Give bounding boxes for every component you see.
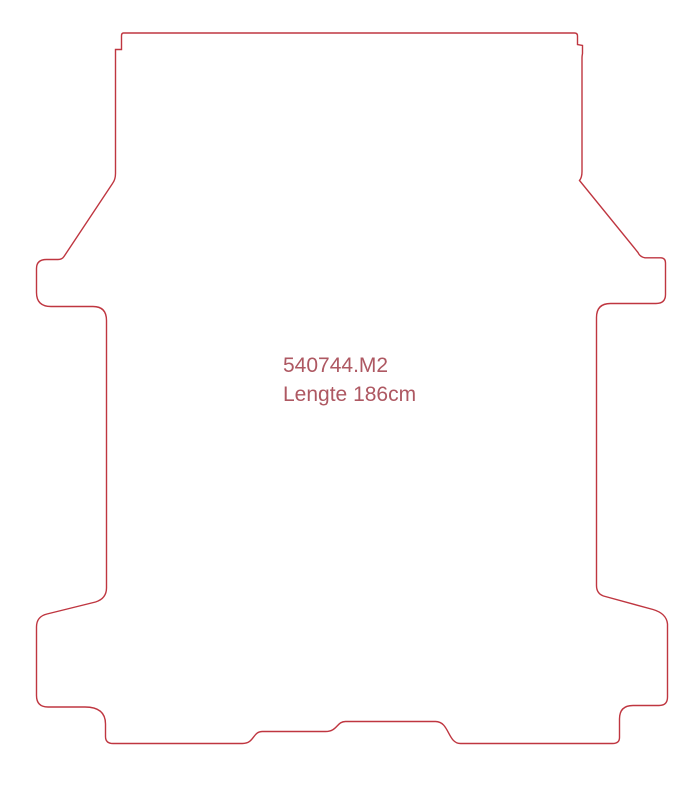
- part-number-label: 540744.M2: [283, 351, 416, 380]
- length-label: Lengte 186cm: [283, 380, 416, 409]
- mat-template-canvas: 540744.M2 Lengte 186cm: [0, 0, 698, 798]
- mat-label: 540744.M2 Lengte 186cm: [283, 351, 416, 409]
